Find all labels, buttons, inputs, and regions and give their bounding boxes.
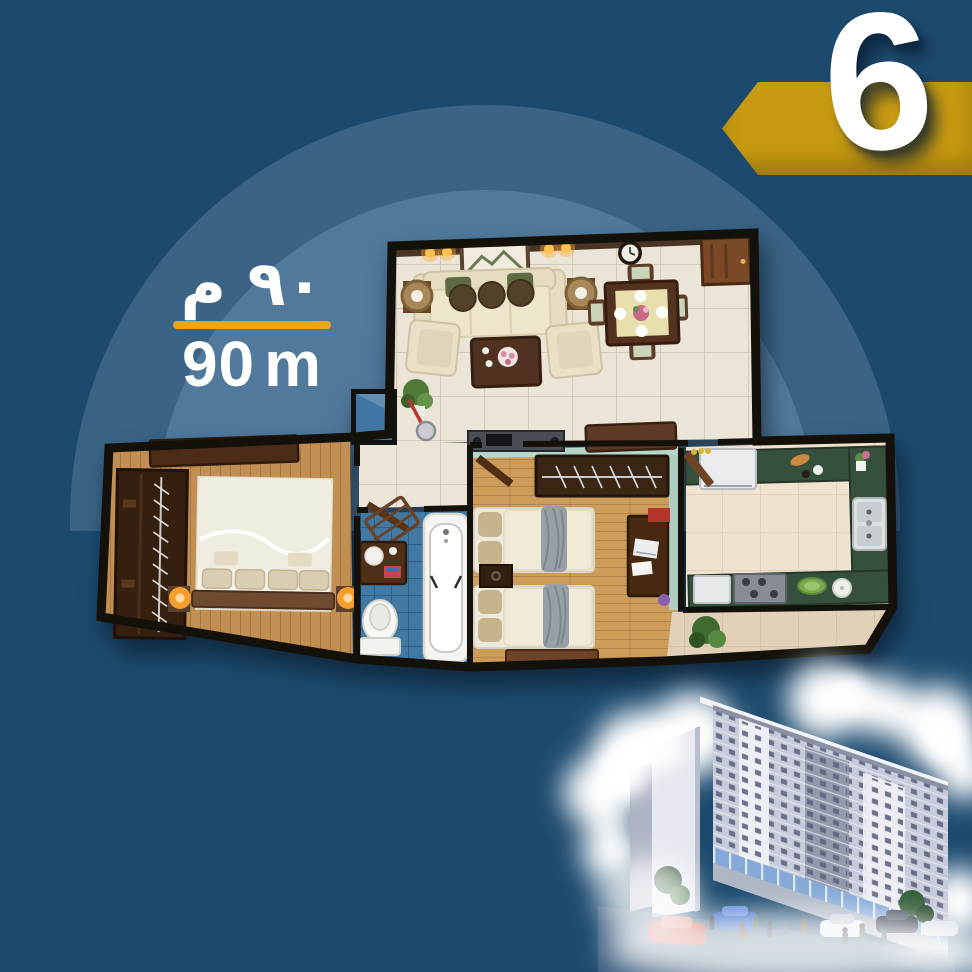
area-label: ٩٠ م 90m <box>150 248 354 400</box>
area-value-latin: 90m <box>150 329 354 399</box>
unit-number: 6 <box>771 0 972 187</box>
area-number: 90 <box>182 328 255 400</box>
poster-canvas: ٩٠ م 90m 6 <box>0 0 972 972</box>
area-value-arabic: ٩٠ م <box>150 248 354 319</box>
area-unit: m <box>264 328 322 400</box>
